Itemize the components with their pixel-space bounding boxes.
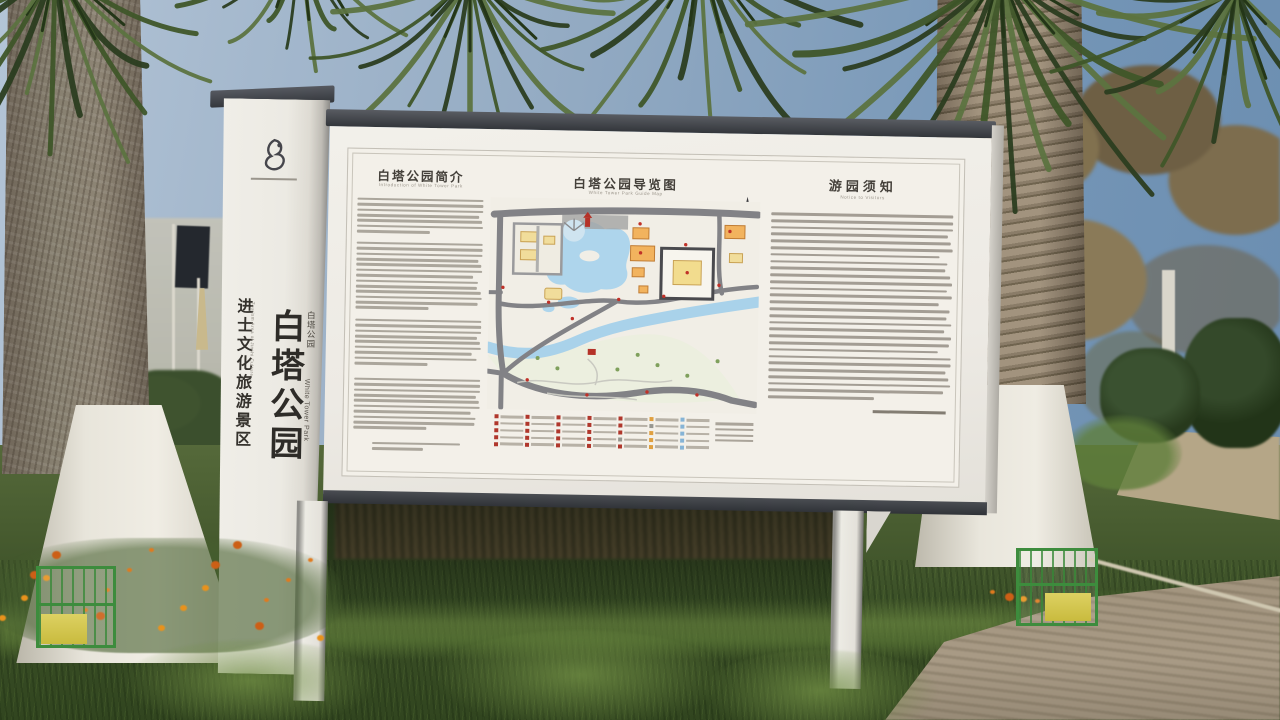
orange-flower bbox=[1005, 593, 1014, 601]
yellow-box bbox=[1045, 593, 1091, 621]
intro-paragraph bbox=[353, 375, 480, 434]
grass-tuft bbox=[430, 630, 730, 720]
orange-flower bbox=[149, 548, 154, 552]
orange-flower bbox=[0, 615, 6, 621]
map-legend bbox=[493, 413, 712, 451]
orange-flower bbox=[233, 541, 242, 549]
orange-flower bbox=[286, 578, 291, 582]
orange-flower bbox=[52, 551, 61, 559]
intro-paragraph bbox=[355, 239, 482, 314]
tree-cage-right bbox=[1016, 548, 1098, 626]
orange-flower bbox=[127, 568, 132, 572]
tree-cage-left bbox=[36, 566, 116, 648]
orange-flower bbox=[202, 585, 209, 591]
orange-flower bbox=[21, 595, 28, 601]
sign-leg-bracket bbox=[866, 511, 891, 553]
park-logo-icon bbox=[257, 136, 292, 177]
section-introduction: 白塔公园简介 Introduction of White Tower Park bbox=[352, 149, 484, 478]
orange-flower bbox=[255, 622, 264, 630]
park-guide-map-graphic bbox=[487, 197, 761, 414]
intro-subtitle-english: Introduction of White Tower Park bbox=[358, 182, 484, 189]
yellow-box bbox=[41, 614, 87, 644]
orange-flower bbox=[990, 590, 995, 594]
orange-flower bbox=[158, 625, 165, 631]
notice-rules-text bbox=[768, 208, 954, 405]
orange-flower bbox=[211, 561, 220, 569]
section-guide-map: 白塔公园导览图 White Tower Park Guide Map bbox=[484, 151, 762, 483]
intro-paragraph bbox=[354, 316, 481, 370]
intro-footnote bbox=[372, 439, 460, 454]
section-visitor-notice: 游园须知 Notice to Visitors bbox=[766, 156, 954, 486]
orange-flower bbox=[264, 598, 269, 602]
map-legend-notes bbox=[715, 419, 753, 445]
orange-flower bbox=[317, 635, 324, 641]
intro-paragraph bbox=[357, 195, 484, 238]
park-photo-scene: 进士文化旅游景区 Tourism Area of Jinshi Culture … bbox=[0, 0, 1280, 720]
poster-panel: 白塔公园简介 Introduction of White Tower Park … bbox=[341, 147, 965, 487]
grass-tuft bbox=[120, 640, 380, 720]
orange-flower bbox=[308, 558, 313, 562]
notice-signature-line bbox=[873, 410, 946, 414]
orange-flower bbox=[180, 605, 187, 611]
